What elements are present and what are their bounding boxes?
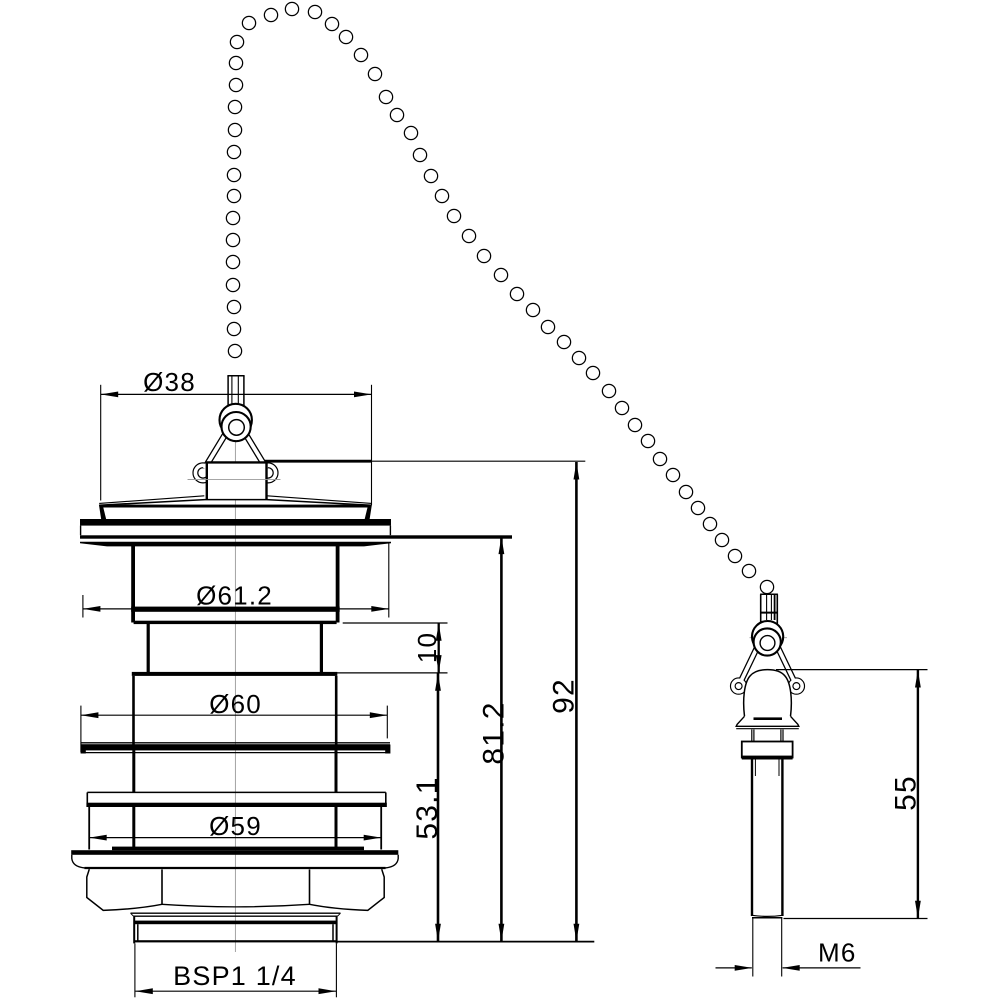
svg-text:M6: M6: [818, 938, 857, 968]
svg-text:92: 92: [548, 678, 581, 714]
svg-text:53.1: 53.1: [411, 776, 444, 839]
svg-text:Ø60: Ø60: [209, 689, 262, 719]
svg-text:Ø59: Ø59: [209, 811, 262, 841]
svg-text:10: 10: [412, 632, 442, 663]
svg-text:55: 55: [890, 775, 923, 811]
svg-text:BSP1 1/4: BSP1 1/4: [173, 961, 297, 991]
svg-text:Ø61.2: Ø61.2: [196, 580, 273, 610]
svg-text:81.2: 81.2: [478, 701, 511, 764]
svg-text:Ø38: Ø38: [143, 367, 196, 397]
